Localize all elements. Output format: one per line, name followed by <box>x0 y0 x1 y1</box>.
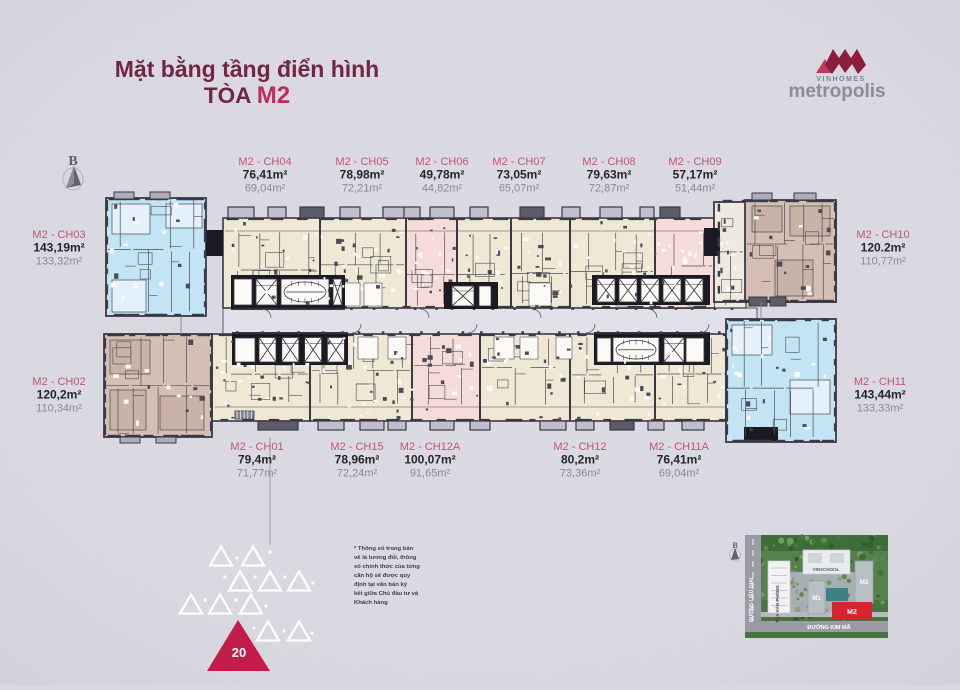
svg-text:M2 - CH08: M2 - CH08 <box>582 156 635 168</box>
svg-text:65,07m²: 65,07m² <box>499 183 540 195</box>
svg-text:76,41m²: 76,41m² <box>657 453 702 467</box>
svg-text:TÒA M2: TÒA M2 <box>204 82 290 109</box>
svg-text:M2 - CH05: M2 - CH05 <box>335 156 388 168</box>
svg-text:ĐƯỜNG KIM MÃ: ĐƯỜNG KIM MÃ <box>807 623 850 631</box>
svg-text:72,21m²: 72,21m² <box>342 183 383 195</box>
svg-text:120,2m²: 120,2m² <box>37 388 82 402</box>
svg-text:69,04m²: 69,04m² <box>659 468 700 480</box>
svg-text:20: 20 <box>232 645 246 660</box>
svg-text:M2 - CH11A: M2 - CH11A <box>649 441 709 453</box>
svg-text:79,63m²: 79,63m² <box>587 168 632 182</box>
svg-text:M2 - CH04: M2 - CH04 <box>238 156 291 168</box>
svg-text:VINSCHOOL: VINSCHOOL <box>813 567 840 572</box>
svg-text:M2: M2 <box>847 609 857 616</box>
svg-text:M2 - CH12A: M2 - CH12A <box>400 441 461 453</box>
svg-text:M2 - CH02: M2 - CH02 <box>32 376 85 388</box>
svg-text:vẽ là tương đối, thông: vẽ là tương đối, thông <box>354 554 417 561</box>
svg-text:* Thông số trong bản: * Thông số trong bản <box>354 545 414 552</box>
svg-text:B: B <box>68 154 77 169</box>
svg-text:143,44m²: 143,44m² <box>854 388 905 402</box>
svg-text:133,32m²: 133,32m² <box>36 256 83 268</box>
svg-text:72,87m²: 72,87m² <box>589 183 630 195</box>
svg-text:định tại văn bản ký: định tại văn bản ký <box>354 582 408 588</box>
svg-text:M2 - CH07: M2 - CH07 <box>492 156 545 168</box>
svg-text:78,96m²: 78,96m² <box>335 453 380 467</box>
svg-text:Mặt bằng tầng điển hình: Mặt bằng tầng điển hình <box>115 55 379 82</box>
svg-text:Khách hàng: Khách hàng <box>354 600 388 606</box>
svg-text:79,4m²: 79,4m² <box>238 453 276 467</box>
svg-text:M2 - CH12: M2 - CH12 <box>553 441 606 453</box>
svg-text:M3: M3 <box>860 580 869 586</box>
svg-text:kết giữa Chủ đầu tư và: kết giữa Chủ đầu tư và <box>354 590 419 597</box>
svg-text:133,33m²: 133,33m² <box>857 403 904 415</box>
svg-text:TÒA VĂN PHÒNG: TÒA VĂN PHÒNG <box>773 585 780 623</box>
svg-text:143,19m²: 143,19m² <box>33 241 84 255</box>
svg-text:69,04m²: 69,04m² <box>245 183 286 195</box>
svg-text:110,34m²: 110,34m² <box>36 403 82 415</box>
svg-text:73,05m²: 73,05m² <box>497 168 542 182</box>
svg-text:căn hộ sẽ được quy: căn hộ sẽ được quy <box>354 573 411 579</box>
svg-text:metropolis: metropolis <box>788 81 885 102</box>
svg-text:57,17m²: 57,17m² <box>673 168 718 182</box>
svg-text:76,41m²: 76,41m² <box>243 168 288 182</box>
svg-text:73,36m²: 73,36m² <box>560 468 601 480</box>
svg-text:M2 - CH03: M2 - CH03 <box>32 229 85 241</box>
svg-text:100,07m²: 100,07m² <box>404 453 455 467</box>
svg-text:M2 - CH09: M2 - CH09 <box>668 156 721 168</box>
svg-text:51,44m²: 51,44m² <box>675 183 716 195</box>
svg-text:M2 - CH10: M2 - CH10 <box>856 229 909 241</box>
svg-text:110,77m²: 110,77m² <box>860 256 906 268</box>
svg-text:80,2m²: 80,2m² <box>561 453 599 467</box>
svg-text:M2 - CH11: M2 - CH11 <box>854 376 906 388</box>
svg-text:78,98m²: 78,98m² <box>340 168 385 182</box>
svg-text:M1: M1 <box>812 596 821 602</box>
svg-text:số chính thức của từng: số chính thức của từng <box>354 563 420 570</box>
svg-text:M2 - CH06: M2 - CH06 <box>415 156 468 168</box>
svg-text:71,77m²: 71,77m² <box>237 468 278 480</box>
svg-text:49,78m²: 49,78m² <box>420 168 465 182</box>
svg-text:120.2m²: 120.2m² <box>861 241 906 255</box>
svg-text:M2 - CH01: M2 - CH01 <box>230 441 283 453</box>
svg-text:91,65m²: 91,65m² <box>410 468 451 480</box>
svg-text:44,82m²: 44,82m² <box>422 183 463 195</box>
svg-text:ĐƯỜNG LIỄU GIAI: ĐƯỜNG LIỄU GIAI <box>747 577 755 622</box>
svg-text:M2 - CH15: M2 - CH15 <box>330 441 383 453</box>
svg-text:72,24m²: 72,24m² <box>337 468 378 480</box>
